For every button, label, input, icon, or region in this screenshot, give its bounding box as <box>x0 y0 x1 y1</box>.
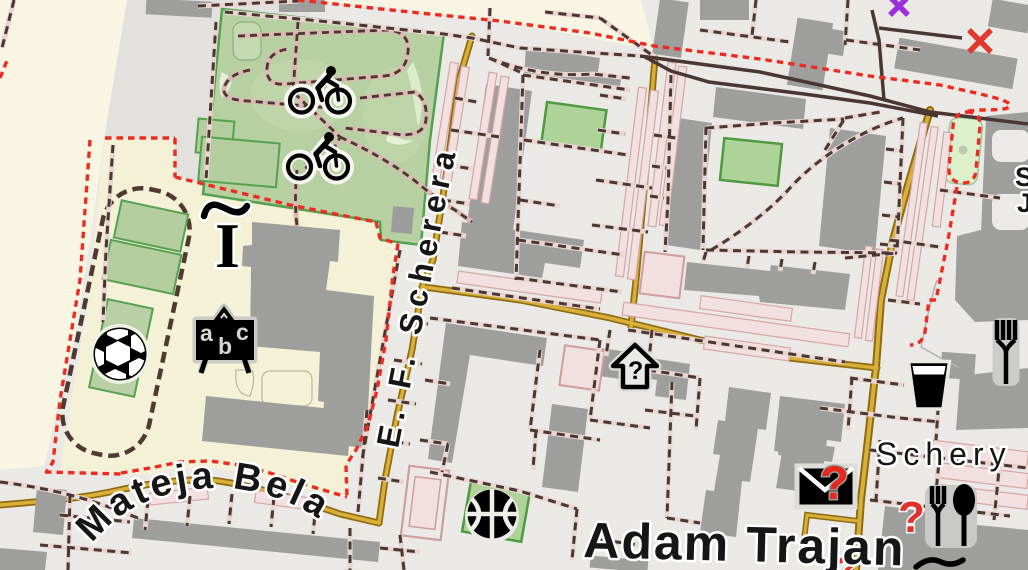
svg-text:Schery: Schery <box>876 436 1012 472</box>
svg-text:I: I <box>215 210 240 281</box>
svg-text:a: a <box>200 320 213 346</box>
svg-text:c: c <box>236 319 249 345</box>
svg-text:?: ? <box>820 456 849 509</box>
svg-text:?: ? <box>628 357 643 385</box>
svg-text:b: b <box>218 333 232 359</box>
svg-text:Ja: Ja <box>1017 188 1028 218</box>
svg-text:Adam Trajan: Adam Trajan <box>583 512 906 570</box>
